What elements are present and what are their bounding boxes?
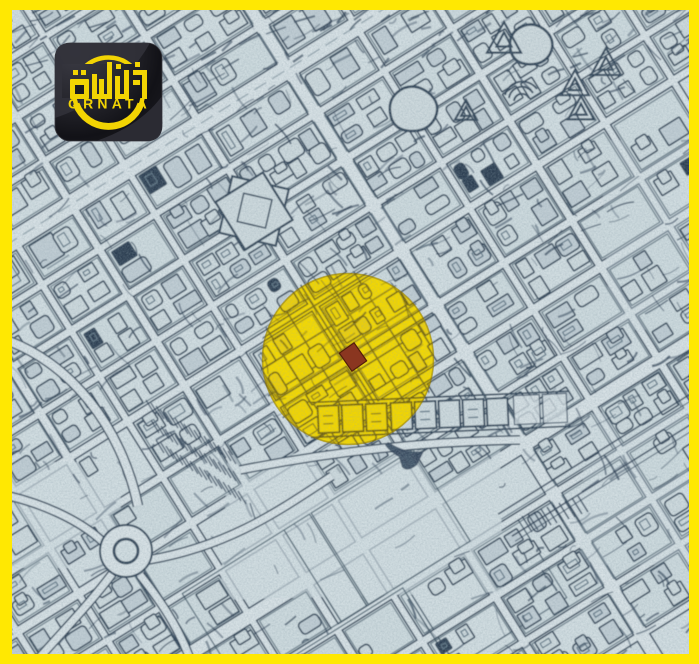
svg-text:GRNATA: GRNATA <box>68 96 151 112</box>
